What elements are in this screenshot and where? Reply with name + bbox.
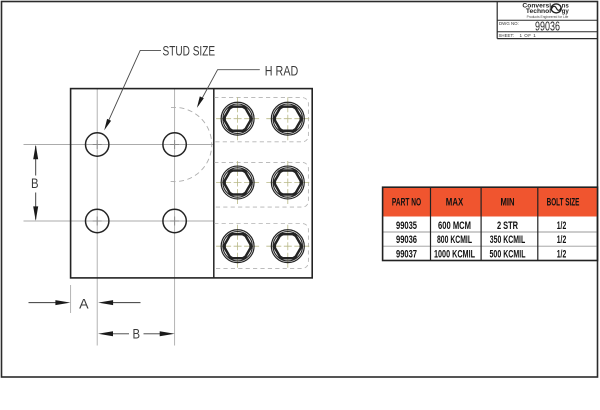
svg-text:1/2: 1/2 (557, 234, 566, 246)
svg-text:1000 KCMIL: 1000 KCMIL (434, 248, 475, 260)
svg-text:STUD SIZE: STUD SIZE (163, 43, 216, 59)
svg-text:DWG NO:: DWG NO: (499, 21, 519, 26)
svg-text:MAX: MAX (446, 197, 464, 210)
svg-text:BOLT SIZE: BOLT SIZE (547, 196, 580, 208)
svg-text:500 KCMIL: 500 KCMIL (490, 248, 526, 260)
svg-text:Products Engineered for Life: Products Engineered for Life (527, 15, 569, 19)
svg-text:600 MCM: 600 MCM (438, 220, 471, 232)
svg-text:SHEET:: SHEET: (499, 33, 514, 38)
svg-text:B: B (133, 326, 141, 341)
svg-text:2 STR: 2 STR (497, 220, 518, 232)
svg-text:99036: 99036 (535, 20, 560, 34)
svg-text:99036: 99036 (396, 234, 417, 246)
svg-text:MIN: MIN (500, 196, 514, 208)
svg-text:350 KCMIL: 350 KCMIL (490, 234, 526, 246)
svg-text:A: A (79, 296, 89, 312)
svg-text:H RAD: H RAD (265, 63, 299, 79)
svg-text:99035: 99035 (396, 220, 417, 232)
svg-text:99037: 99037 (396, 248, 417, 260)
svg-text:800 KCMIL: 800 KCMIL (437, 234, 472, 246)
svg-text:B: B (31, 176, 39, 191)
svg-text:1/2: 1/2 (557, 219, 566, 231)
svg-text:1 OF 1: 1 OF 1 (520, 33, 537, 38)
svg-text:PART NO: PART NO (392, 196, 421, 208)
svg-text:1/2: 1/2 (557, 248, 566, 260)
